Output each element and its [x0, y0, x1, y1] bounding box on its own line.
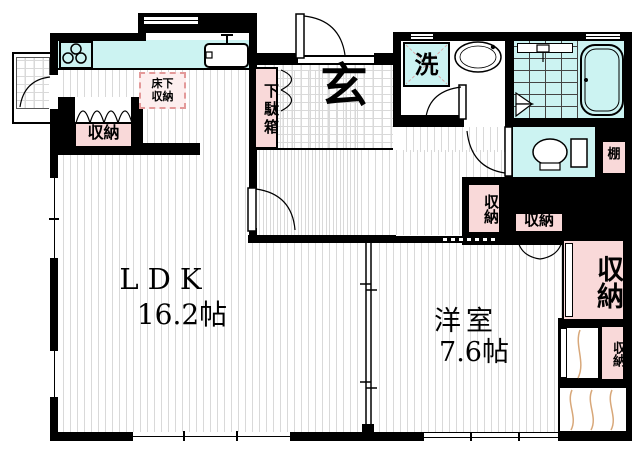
closet-door-zone: [75, 97, 131, 123]
window-western-bottom: [424, 433, 558, 441]
porch-grid: [16, 57, 50, 109]
porch-door-opening: [49, 75, 58, 109]
closet-kitchen-label: 収納: [76, 125, 131, 142]
closet-east-small-label: 収納: [601, 329, 624, 379]
bathtub-zone: [578, 41, 624, 118]
wall-opening-dashed: [443, 238, 497, 241]
kitchen-sink: [204, 43, 249, 68]
underfloor-storage-label-1: 床下: [140, 78, 185, 90]
wall-entrance-north-left: [255, 53, 298, 65]
shoe-cabinet-label: 下駄箱: [256, 74, 278, 146]
curtain-closet-lower: [558, 386, 628, 433]
window-left-lower: [50, 351, 58, 397]
window-bath-top: [586, 34, 620, 39]
front-door: [296, 14, 345, 58]
wall-wash-bath-divider: [505, 41, 514, 118]
wall-top-kitchen: [50, 33, 142, 41]
washer-label: 洗: [404, 52, 449, 77]
window-washroom-top: [411, 34, 433, 39]
bath-counter: [517, 43, 573, 53]
wall-hall-south: [248, 235, 396, 243]
window-ldk-bottom: [133, 432, 290, 441]
ldk-area-label: 16.2帖: [107, 300, 257, 329]
ldk-name-label: LDK: [95, 264, 235, 294]
underfloor-storage-label-2: 収納: [140, 91, 185, 103]
western-name-label: 洋室: [396, 308, 536, 336]
window-kitchen-top: [144, 17, 198, 24]
washroom-door: [426, 85, 466, 119]
washbasin: [455, 42, 501, 72]
closet-hall-small-label: 収納: [515, 213, 563, 229]
closet-hall-vertical-label: 収納: [470, 186, 498, 232]
closet-east-large-door: [565, 243, 573, 317]
floor-plan: LDK 16.2帖 洋室 7.6帖 玄 下駄箱 床下 収納 収納 収納 収納 収…: [0, 0, 640, 450]
entrance-label: 玄: [316, 62, 372, 111]
washroom-door-opening: [464, 117, 505, 127]
toilet-shelf-label: 棚: [603, 148, 625, 162]
toilet-room-floor: [513, 127, 595, 177]
stove: [59, 41, 93, 69]
partition-stub-bottom: [362, 424, 374, 433]
closet-east-large-label: 収納: [577, 246, 621, 318]
western-area-label: 7.6帖: [404, 339, 544, 367]
wall-washroom-south: [393, 115, 465, 127]
curtain-closet-upper-door: [560, 328, 567, 378]
